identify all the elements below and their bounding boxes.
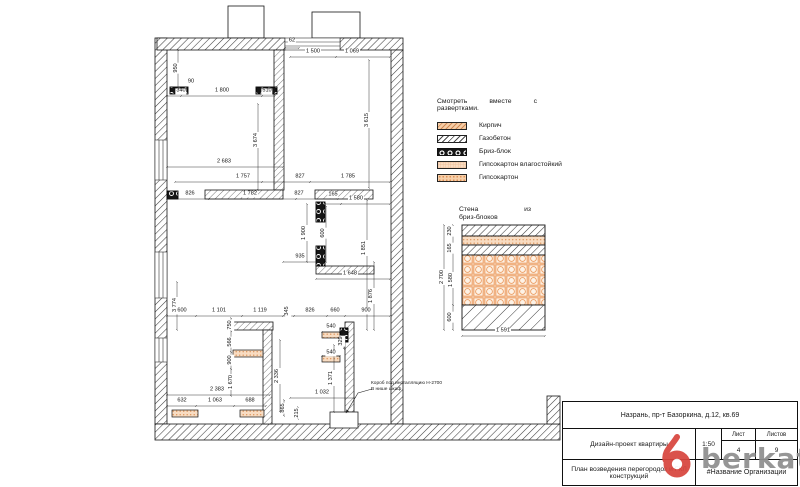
detail-title-line2: бриз-блоков (459, 214, 531, 222)
interior-partitions (205, 50, 374, 424)
briz-block-walls (167, 87, 348, 342)
note-line1: Короб под инсталляцию Н-2700 (371, 381, 442, 387)
drawing-sheet: { "legend": { "note_line1": "Смотреть вм… (0, 0, 800, 487)
legend-item: Газобетон (437, 134, 555, 143)
gkl-moist-swatch-icon (437, 161, 467, 169)
watermark-text: berkat. (701, 442, 800, 475)
detail-title: Стена из бриз-блоков (459, 206, 531, 223)
materials-legend: Смотреть вместе с развертками. КирпичГаз… (437, 98, 555, 186)
duct-box-note: Короб под инсталляцию Н-2700 В нише шкаф (371, 381, 442, 393)
detail-title-word: из (524, 206, 531, 214)
legend-label: Гипсокартон влагостойкий (479, 161, 562, 168)
gkl-swatch-icon (437, 174, 467, 182)
legend-note-line2: развертками. (437, 105, 555, 112)
berkat-logo-icon (656, 434, 700, 482)
legend-item: Кирпич (437, 121, 555, 130)
brick-swatch-icon (437, 122, 467, 130)
legend-label: Газобетон (479, 135, 511, 142)
legend-label: Кирпич (479, 122, 502, 129)
exterior-walls (155, 6, 560, 440)
briz-swatch-icon (437, 148, 467, 156)
aerated-swatch-icon (437, 135, 467, 143)
gypsum-partitions (172, 332, 340, 417)
berkat-watermark: berkat. (656, 434, 800, 482)
legend-item: Гипсокартон (437, 173, 555, 182)
legend-item: Бриз-блок (437, 147, 555, 156)
legend-label: Гипсокартон (479, 174, 518, 181)
note-line2: В нише шкаф (371, 387, 442, 393)
legend-items: КирпичГазобетонБриз-блокГипсокартон влаг… (437, 121, 555, 182)
legend-label: Бриз-блок (479, 148, 511, 155)
legend-item: Гипсокартон влагостойкий (437, 160, 555, 169)
legend-note: Смотреть вместе с (437, 98, 537, 105)
briz-wall-detail (462, 225, 545, 330)
address: Назрань, пр-т Базоркина, д.12, кв.69 (621, 412, 740, 419)
duct-box-niche (330, 412, 358, 428)
